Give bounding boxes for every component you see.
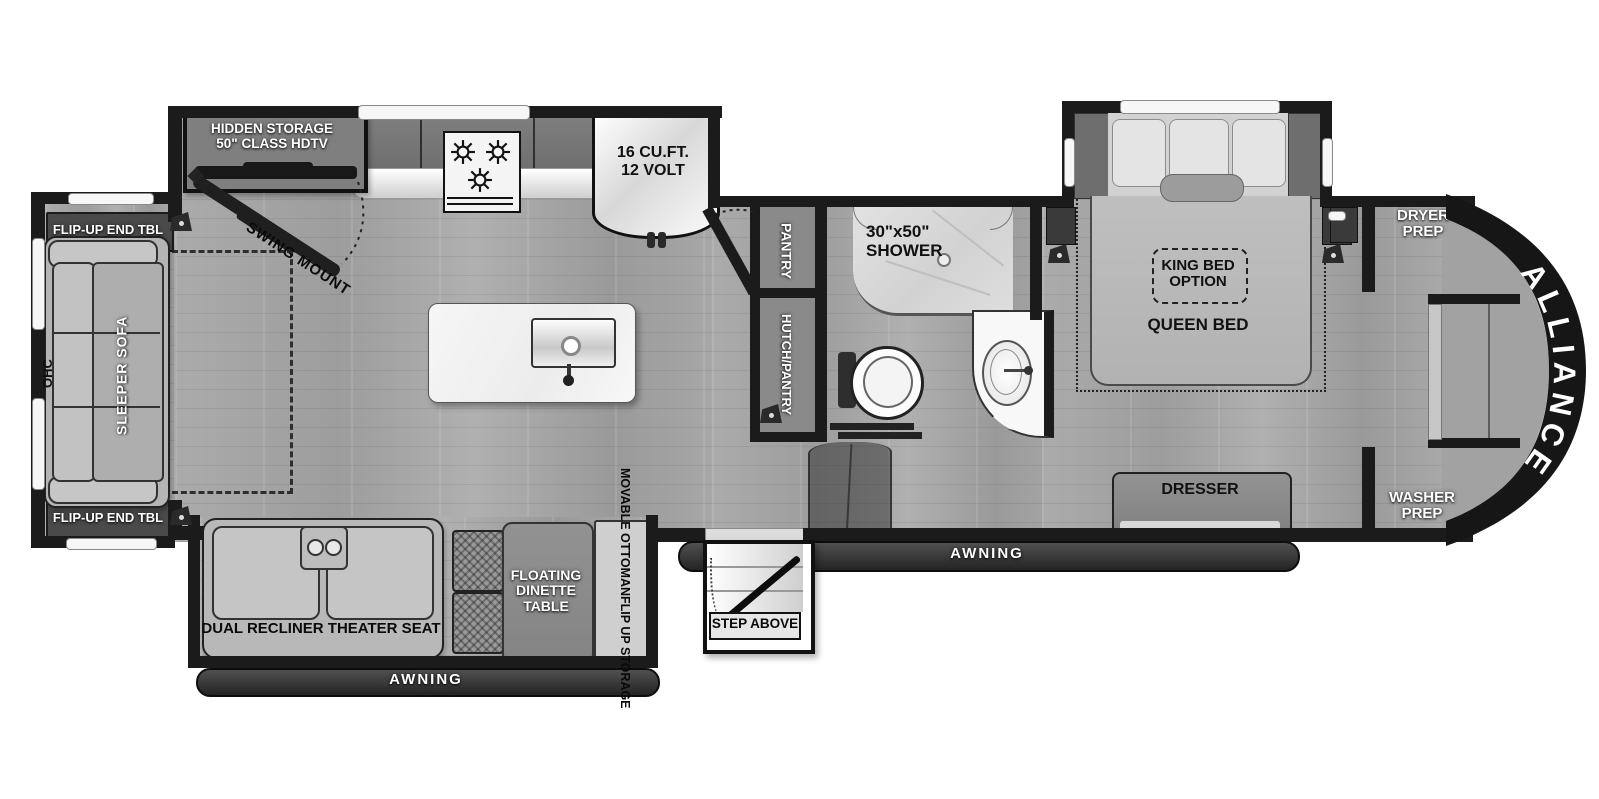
step-above-label: STEP ABOVE (709, 612, 801, 636)
rv-floorplan: FLIP-UP END TBL FLIP-UP END TBL OHC SLEE… (0, 0, 1599, 799)
front-cap: ALLIANCE (0, 0, 1599, 799)
tv-swing-arc-dotted (342, 182, 363, 264)
entry-steps (703, 540, 815, 654)
entry-door-swing-dotted (716, 210, 757, 214)
